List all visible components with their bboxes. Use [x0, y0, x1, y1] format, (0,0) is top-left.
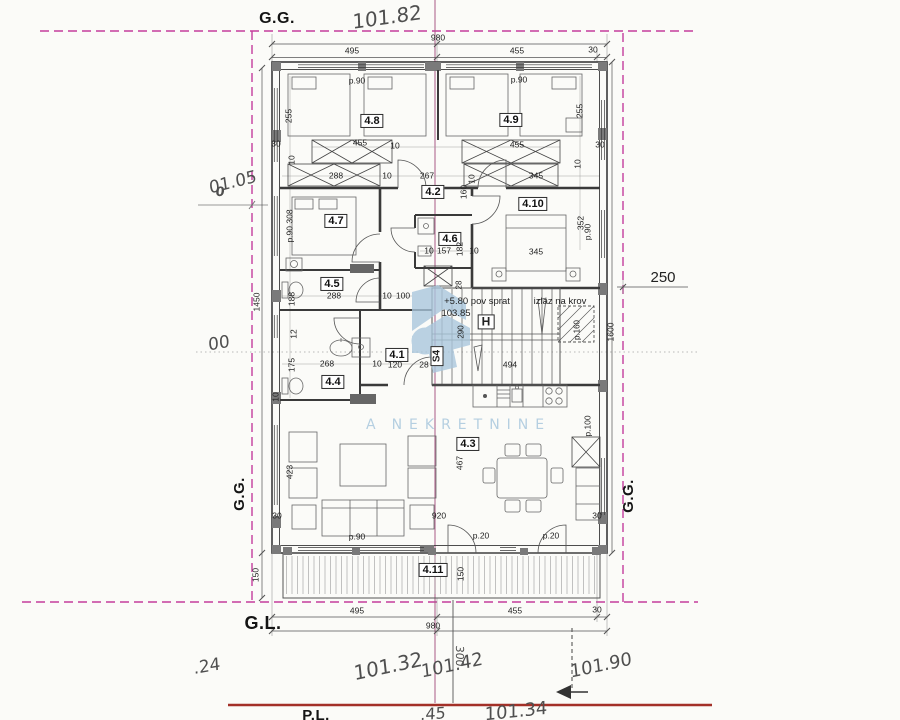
room-label-4-4: 4.4	[321, 375, 344, 389]
dim-288-w: 288	[329, 171, 343, 180]
dim-left-1450: 1450	[252, 293, 261, 312]
stair-h-label: H	[478, 314, 495, 329]
elevation-top: 101.82	[352, 1, 422, 33]
room-label-4-3: 4.3	[456, 437, 479, 451]
gl-bottom-label: G.L.	[245, 614, 282, 634]
dim-p90-308: p.90 308	[285, 209, 294, 242]
room-label-4-2: 4.2	[421, 185, 444, 199]
dim-120: 120	[388, 360, 402, 369]
gg-right-label: G.G.	[621, 479, 638, 513]
elevation-left-zero: 0	[215, 186, 226, 200]
pl-bottom-label: P.L.	[302, 708, 330, 720]
gg-top-label: G.G.	[259, 10, 295, 28]
dim-30-bl: 30	[272, 511, 281, 520]
dim-p90-sofa: p.90	[349, 532, 366, 541]
dim-30-tr: 30	[595, 140, 604, 149]
dim-345-room410: 345	[529, 247, 543, 256]
dim-10-g: 10	[469, 246, 478, 255]
dim-345-w: 345	[529, 171, 543, 180]
plan-labels-layer: G.G.G.G.G.G.G.L.P.L.101.8201.05000.24101…	[0, 0, 900, 720]
elevation-bottom-10132: 101.32	[353, 648, 424, 685]
dim-10-e: 10	[467, 174, 476, 183]
dim-494: 494	[503, 360, 517, 369]
dim-10-i: 10	[271, 392, 280, 401]
dim-10-h: 10	[382, 291, 391, 300]
dim-right-250: 250	[650, 270, 675, 287]
dim-30-br: 30	[592, 511, 601, 520]
dim-top-980: 980	[431, 33, 445, 42]
stair-s4-label: S4	[431, 346, 444, 366]
dim-28: 28	[419, 360, 428, 369]
room-label-4-8: 4.8	[360, 114, 383, 128]
elevation-bottom-10134: 101.34	[485, 699, 548, 720]
dim-255-right: 255	[575, 104, 584, 118]
dim-290: 290	[458, 325, 467, 338]
dim-top-495: 495	[345, 46, 359, 55]
dim-188: 188	[287, 292, 296, 306]
dim-10-a: 10	[287, 155, 296, 164]
dim-p160: p.160	[574, 320, 583, 340]
room-label-4-9: 4.9	[499, 113, 522, 127]
dim-28-stair: 28	[456, 281, 465, 290]
level-note: +5.80 pov sprat	[444, 297, 510, 307]
elevation-left-lower: 00	[208, 333, 231, 356]
elevation-bottom-10190: 101.90	[569, 650, 633, 683]
dim-255-left: 255	[284, 109, 293, 123]
roof-exit-note: izlaz na krov	[534, 297, 587, 307]
dim-p90-room49: p.90	[511, 75, 528, 84]
gg-left-label: G.G.	[232, 477, 249, 511]
dim-bottom-30: 30	[592, 605, 601, 614]
survey-300: 300	[453, 645, 465, 667]
room-label-4-11: 4.11	[419, 563, 448, 577]
dim-288-45: 288	[327, 291, 341, 300]
dim-12: 12	[289, 329, 298, 338]
dim-455-wl: 455	[353, 138, 367, 147]
floor-plan-canvas: ANEKRETNINE G.G.G.G.G.G.G.L.P.L.101.8201…	[0, 0, 900, 720]
dim-100: 100	[396, 291, 410, 300]
elevation-bottom-24: .24	[193, 655, 221, 678]
dim-p90-right: p.90	[583, 224, 592, 241]
room-label-4-7: 4.7	[324, 214, 347, 228]
dim-left-150: 150	[251, 568, 260, 582]
dim-30-tl: 30	[271, 139, 280, 148]
room-label-4-5: 4.5	[320, 277, 343, 291]
dim-p20-a: p.20	[473, 531, 490, 540]
dim-150-terrace: 150	[456, 567, 465, 581]
dim-423: 423	[285, 465, 294, 479]
dim-top-455: 455	[510, 46, 524, 55]
dim-455-wr: 455	[510, 140, 524, 149]
dim-157: 157	[437, 246, 451, 255]
dim-268: 268	[320, 359, 334, 368]
dim-10-b: 10	[390, 141, 399, 150]
dim-p100: p.100	[583, 415, 592, 436]
dim-right-1600: 1600	[606, 323, 615, 342]
dim-182: 182	[455, 242, 464, 256]
dim-10-f: 10	[424, 246, 433, 255]
dim-p90-room48: p.90	[349, 76, 366, 85]
dim-175: 175	[287, 358, 296, 372]
elevation-bottom-45: .45	[420, 704, 446, 720]
dim-467: 467	[455, 456, 464, 470]
dim-bottom-455: 455	[508, 606, 522, 615]
dim-267: 267	[420, 171, 434, 180]
dim-top-30: 30	[588, 45, 597, 54]
room-label-4-10: 4.10	[518, 197, 547, 211]
dim-bottom-495: 495	[350, 606, 364, 615]
level-value: 103.85	[441, 309, 470, 319]
dim-p20-b: p.20	[543, 531, 560, 540]
dim-10-c: 10	[382, 171, 391, 180]
dim-10-d: 10	[573, 159, 582, 168]
dim-920: 920	[432, 511, 446, 520]
dim-bottom-980: 980	[426, 621, 440, 630]
dim-160: 160	[459, 185, 468, 199]
dim-10-j: 10	[372, 359, 381, 368]
